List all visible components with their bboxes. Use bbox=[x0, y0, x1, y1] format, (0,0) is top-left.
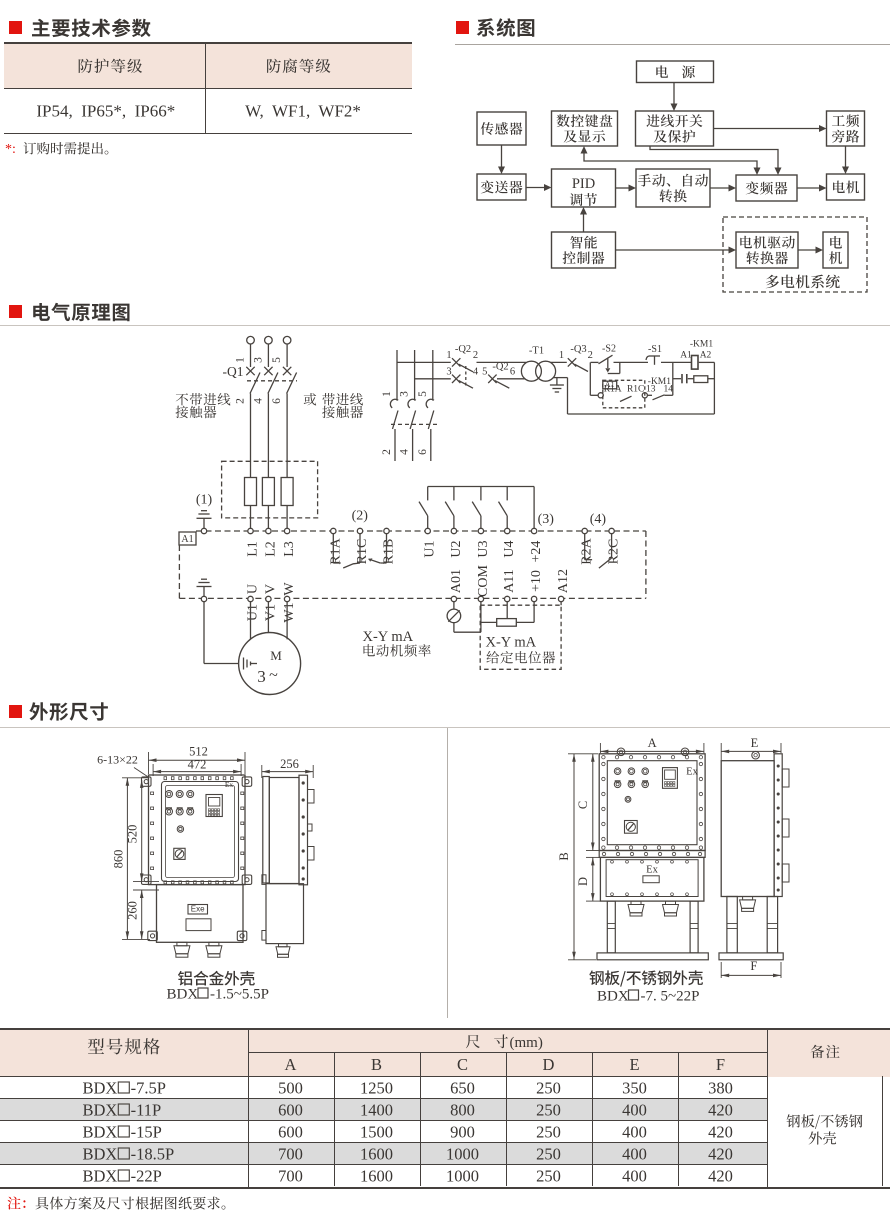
svg-text:3: 3 bbox=[399, 391, 411, 397]
svg-text:-22P: -22P bbox=[131, 1166, 162, 1185]
svg-text:A: A bbox=[648, 736, 657, 750]
svg-text:400: 400 bbox=[622, 1122, 647, 1141]
svg-text:250: 250 bbox=[536, 1166, 561, 1185]
svg-text:*:: *: bbox=[5, 142, 16, 157]
svg-text:1600: 1600 bbox=[360, 1166, 393, 1185]
svg-text:W: W bbox=[282, 582, 297, 596]
svg-text:6: 6 bbox=[510, 366, 515, 377]
svg-text:3: 3 bbox=[252, 357, 264, 363]
svg-text:U1: U1 bbox=[246, 604, 261, 621]
svg-text:X-Y mA: X-Y mA bbox=[363, 629, 414, 645]
svg-text:Ex: Ex bbox=[646, 865, 658, 876]
svg-text:F: F bbox=[716, 1055, 725, 1074]
svg-text:(4): (4) bbox=[590, 512, 607, 527]
svg-text:-Q3: -Q3 bbox=[570, 344, 586, 355]
svg-text:1: 1 bbox=[381, 391, 393, 397]
svg-text:W1: W1 bbox=[282, 602, 297, 622]
svg-text:Ex: Ex bbox=[686, 767, 698, 778]
svg-text:L2: L2 bbox=[263, 541, 278, 557]
svg-text:B: B bbox=[557, 852, 571, 860]
svg-text:R1B: R1B bbox=[382, 539, 397, 565]
svg-text:W, WF1, WF2*: W, WF1, WF2* bbox=[245, 102, 361, 121]
svg-text:BDX: BDX bbox=[82, 1144, 117, 1163]
svg-text:U2: U2 bbox=[449, 540, 464, 557]
svg-text:3: 3 bbox=[257, 667, 266, 686]
svg-text:R1A: R1A bbox=[328, 537, 343, 564]
svg-text:-Q2: -Q2 bbox=[492, 361, 508, 372]
svg-text:(3): (3) bbox=[538, 512, 555, 527]
svg-text:(1): (1) bbox=[196, 493, 213, 508]
svg-text:260: 260 bbox=[126, 901, 140, 920]
svg-text:A11: A11 bbox=[502, 569, 517, 593]
svg-text:5: 5 bbox=[482, 366, 487, 377]
svg-text:E: E bbox=[629, 1055, 639, 1074]
svg-text:U: U bbox=[246, 584, 261, 594]
svg-text:250: 250 bbox=[536, 1100, 561, 1119]
svg-text:BDX: BDX bbox=[82, 1100, 117, 1119]
svg-text:-11P: -11P bbox=[131, 1100, 162, 1119]
svg-text:+24: +24 bbox=[529, 541, 544, 563]
svg-text:1400: 1400 bbox=[360, 1100, 393, 1119]
svg-text:1000: 1000 bbox=[446, 1144, 479, 1163]
svg-text:A01: A01 bbox=[449, 569, 464, 593]
svg-text:-18.5P: -18.5P bbox=[131, 1144, 175, 1163]
svg-text:A2: A2 bbox=[700, 351, 712, 361]
svg-text:420: 420 bbox=[708, 1122, 733, 1141]
svg-text:800: 800 bbox=[450, 1100, 475, 1119]
svg-text:-T1: -T1 bbox=[529, 346, 544, 357]
svg-text:BDX: BDX bbox=[82, 1078, 117, 1097]
svg-text:BDX: BDX bbox=[82, 1122, 117, 1141]
svg-text:C: C bbox=[576, 801, 590, 809]
svg-text:256: 256 bbox=[280, 757, 299, 771]
svg-text:B: B bbox=[371, 1055, 382, 1074]
svg-text:V1: V1 bbox=[263, 604, 278, 621]
svg-text:380: 380 bbox=[708, 1078, 733, 1097]
svg-text:R1C: R1C bbox=[355, 539, 370, 565]
svg-text:1000: 1000 bbox=[446, 1166, 479, 1185]
svg-text:(mm): (mm) bbox=[510, 1035, 543, 1051]
svg-text:-7.5P: -7.5P bbox=[131, 1078, 166, 1097]
svg-text:350: 350 bbox=[622, 1078, 647, 1097]
svg-text:L3: L3 bbox=[282, 541, 297, 557]
svg-text:1250: 1250 bbox=[360, 1078, 393, 1097]
svg-text:13: 13 bbox=[646, 385, 656, 395]
svg-text:6: 6 bbox=[271, 398, 283, 404]
svg-text:M: M bbox=[270, 648, 282, 663]
svg-text:250: 250 bbox=[536, 1078, 561, 1097]
svg-text:COM: COM bbox=[476, 565, 491, 597]
svg-text:500: 500 bbox=[278, 1078, 303, 1097]
svg-text:+10: +10 bbox=[529, 570, 544, 592]
svg-text:400: 400 bbox=[622, 1100, 647, 1119]
svg-text:L1: L1 bbox=[246, 541, 261, 557]
svg-text:~: ~ bbox=[269, 667, 278, 684]
svg-text:Exe: Exe bbox=[191, 905, 205, 914]
svg-text:2: 2 bbox=[473, 350, 478, 361]
svg-text:D: D bbox=[543, 1055, 555, 1074]
svg-text:520: 520 bbox=[126, 825, 140, 844]
svg-text:2: 2 bbox=[381, 449, 393, 455]
svg-text:R2A: R2A bbox=[580, 537, 595, 564]
svg-text:6: 6 bbox=[417, 449, 429, 455]
svg-text:-S1: -S1 bbox=[648, 344, 662, 355]
svg-text:-Q1: -Q1 bbox=[223, 364, 244, 379]
svg-text:C: C bbox=[457, 1055, 468, 1074]
svg-text:1: 1 bbox=[235, 357, 247, 363]
svg-text:700: 700 bbox=[278, 1166, 303, 1185]
svg-text:-S2: -S2 bbox=[602, 344, 616, 355]
svg-text:BDX: BDX bbox=[597, 989, 629, 1005]
svg-text:2: 2 bbox=[235, 398, 247, 404]
svg-text:PID: PID bbox=[572, 176, 595, 192]
svg-text:-1.5~5.5P: -1.5~5.5P bbox=[210, 987, 269, 1003]
svg-text:5: 5 bbox=[417, 391, 429, 397]
svg-text:U4: U4 bbox=[502, 540, 517, 557]
svg-text:650: 650 bbox=[450, 1078, 475, 1097]
svg-text:-KM1: -KM1 bbox=[690, 340, 713, 350]
svg-text:A1: A1 bbox=[181, 534, 193, 545]
svg-text:U3: U3 bbox=[476, 540, 491, 557]
svg-text:IP54, IP65*, IP66*: IP54, IP65*, IP66* bbox=[36, 102, 175, 121]
svg-text:E: E bbox=[751, 736, 759, 750]
svg-text:420: 420 bbox=[708, 1144, 733, 1163]
svg-text:V: V bbox=[263, 584, 278, 594]
svg-text:250: 250 bbox=[536, 1122, 561, 1141]
svg-text:A1: A1 bbox=[680, 351, 692, 361]
svg-text:-Q2: -Q2 bbox=[455, 344, 471, 355]
svg-text:4: 4 bbox=[473, 366, 479, 377]
svg-text:A12: A12 bbox=[556, 569, 571, 593]
svg-text:250: 250 bbox=[536, 1144, 561, 1163]
svg-text:-7. 5~22P: -7. 5~22P bbox=[641, 989, 700, 1005]
svg-text:-15P: -15P bbox=[131, 1122, 162, 1141]
svg-text:1: 1 bbox=[446, 350, 451, 361]
svg-text:1: 1 bbox=[559, 350, 564, 361]
svg-text:U1: U1 bbox=[423, 540, 438, 557]
svg-text:400: 400 bbox=[622, 1166, 647, 1185]
svg-text:F: F bbox=[750, 959, 757, 973]
svg-text:1500: 1500 bbox=[360, 1122, 393, 1141]
svg-text:4: 4 bbox=[399, 449, 411, 455]
svg-text:X-Y mA: X-Y mA bbox=[486, 634, 537, 650]
svg-text:900: 900 bbox=[450, 1122, 475, 1141]
svg-text:420: 420 bbox=[708, 1100, 733, 1119]
svg-text:D: D bbox=[576, 877, 590, 886]
svg-text:2: 2 bbox=[588, 350, 593, 361]
svg-text:4: 4 bbox=[252, 398, 264, 404]
svg-text:860: 860 bbox=[112, 850, 126, 869]
svg-text:BDX: BDX bbox=[82, 1166, 117, 1185]
svg-text:1600: 1600 bbox=[360, 1144, 393, 1163]
svg-text:600: 600 bbox=[278, 1100, 303, 1119]
svg-text:14: 14 bbox=[663, 385, 673, 395]
svg-text:600: 600 bbox=[278, 1122, 303, 1141]
svg-text:700: 700 bbox=[278, 1144, 303, 1163]
svg-text:6-13×22: 6-13×22 bbox=[97, 753, 138, 767]
svg-text:472: 472 bbox=[188, 757, 207, 771]
svg-text:420: 420 bbox=[708, 1166, 733, 1185]
svg-text:A: A bbox=[285, 1055, 297, 1074]
svg-text:3: 3 bbox=[446, 366, 451, 377]
svg-text:400: 400 bbox=[622, 1144, 647, 1163]
svg-text:Ex: Ex bbox=[225, 780, 234, 789]
svg-text:R1A: R1A bbox=[604, 385, 622, 395]
svg-text:R1C: R1C bbox=[627, 385, 644, 395]
svg-text:BDX: BDX bbox=[167, 987, 199, 1003]
svg-text:(2): (2) bbox=[352, 509, 369, 524]
svg-text:5: 5 bbox=[271, 357, 283, 363]
